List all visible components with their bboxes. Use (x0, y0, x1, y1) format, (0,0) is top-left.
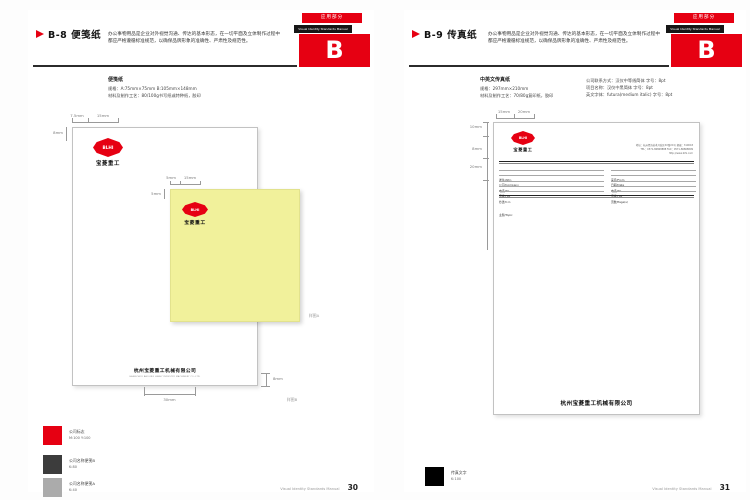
spec-title: 便笺纸 (108, 76, 201, 83)
company-logo: BLHI 宝菱重工 (182, 202, 208, 226)
dim-line (487, 122, 488, 250)
page-footer: Visual Identity Standards Manual 30 (208, 475, 358, 494)
legend-entry: 传真文字 K:100 (451, 470, 467, 481)
fax-field: 电话/Tel (611, 177, 696, 182)
dim-tick (170, 181, 171, 185)
dim-tick (88, 118, 89, 123)
footer-manual-name: Visual Identity Standards Manual (652, 487, 711, 491)
spec-block: 便笺纸 规格：A:75mm×75mm B:105mm×148mm 材料及制作工艺… (108, 76, 201, 99)
company-name-cn: 杭州宝菱重工机械有限公司 (494, 399, 699, 407)
legend-value: K:40 (69, 488, 95, 492)
type-spec-contact: 公司联系方式：汉仪中等线简体 字号：8pt (586, 77, 672, 84)
dim-label: 5mm (146, 191, 161, 196)
typography-spec-block: 公司联系方式：汉仪中等线简体 字号：8pt 项目名称：汉仪中黑简体 字号：8pt… (586, 77, 672, 98)
section-arrow-icon (36, 30, 44, 38)
footer-page-number: 31 (720, 483, 730, 492)
dim-line (164, 189, 165, 199)
fax-field: 传真/Fax (611, 182, 696, 187)
dim-tick (534, 114, 535, 119)
dim-label: 20mm (460, 164, 482, 169)
legend-entry: 公司标志 M:100 Y:100 (69, 429, 91, 440)
dim-label: 15mm (494, 109, 514, 114)
dim-label: 5mm (163, 175, 179, 180)
header-rule (409, 65, 669, 67)
dim-tick (496, 114, 497, 119)
legend-entry: 公司名称便笺A K:40 (69, 481, 95, 492)
section-tab: 应用部分 (674, 13, 734, 23)
spec-material: 材料及制作工艺：80/100g书写纸或特种纸，胶印 (108, 92, 201, 99)
legend-value: K:80 (69, 465, 95, 469)
spec-size: 规格：297mm×210mm (480, 85, 553, 92)
dim-label: 15mm (90, 113, 116, 118)
dim-line (266, 373, 267, 386)
memo-note-paper: BLHI 宝菱重工 (170, 189, 300, 322)
legend-swatch-light-gray (43, 478, 62, 497)
dim-line (496, 118, 534, 119)
section-letter-badge: B (299, 34, 370, 67)
manual-name-bar: Visual Identity Standards Manual (294, 25, 352, 33)
dim-tick (180, 181, 181, 185)
page-title: B-9 传真纸 (424, 27, 477, 41)
dim-tick (483, 122, 489, 123)
spec-size: 规格：A:75mm×75mm B:105mm×148mm (108, 85, 201, 92)
fax-field: 传真/Fax (499, 182, 604, 187)
dim-label: 10mm (460, 124, 482, 129)
legend-swatch-dark-gray (43, 455, 62, 474)
fax-header-rule (499, 161, 694, 164)
fax-field: 公司/Company (499, 171, 604, 176)
fax-company-block: 杭州宝菱重工机械有限公司 (494, 399, 699, 407)
section-letter-badge: B (671, 34, 742, 67)
company-name-en: HANGZHOU BAOLING HEAVY INDUSTRY MACHINER… (73, 376, 257, 378)
legend-swatch-black (425, 467, 444, 486)
section-description: 办公事物用品是企业对外视觉沟通、传达的基本形态，在一切平面及立体制作过程中都应严… (108, 31, 280, 46)
dim-tick (261, 373, 270, 374)
dim-line (170, 184, 200, 185)
section-arrow-icon (412, 30, 420, 38)
fax-divider-rule (499, 195, 694, 198)
dim-tick (483, 158, 489, 159)
right-page: B-9 传真纸 办公事物用品是企业对外视觉沟通、传达的基本形态，在一切平面及立体… (404, 10, 746, 492)
logo-diamond-icon: BLHI (511, 131, 535, 145)
legend-label: 公司名称便笺A (69, 481, 95, 487)
company-logo: BLHI 宝菱重工 (511, 131, 535, 153)
fax-contact-line: http://www.blhi.com (636, 152, 693, 156)
dim-label: 8mm (273, 376, 283, 381)
dim-line (66, 127, 67, 141)
logo-diamond-icon: BLHI (182, 202, 208, 217)
dim-label: 20mm (513, 109, 535, 114)
legend-label: 公司名称便笺B (69, 458, 95, 464)
dim-tick (261, 386, 270, 387)
fax-field: 电话/Tel (499, 177, 604, 182)
section-description: 办公事物用品是企业对外视觉沟通、传达的基本形态，在一切平面及立体制作过程中都应严… (488, 31, 660, 46)
type-spec-english: 英文字体：futura(medium italic) 字号：8pt (586, 91, 672, 98)
memo-company-block: 杭州宝菱重工机械有限公司 HANGZHOU BAOLING HEAVY INDU… (73, 367, 257, 378)
dim-tick (72, 118, 73, 123)
logo-cn-name: 宝菱重工 (93, 159, 123, 167)
spec-block: 中英文传真纸 规格：297mm×210mm 材料及制作工艺：70/80g复印纸，… (480, 76, 553, 99)
dim-tick (514, 114, 515, 119)
spec-title: 中英文传真纸 (480, 76, 553, 83)
dim-line (72, 122, 118, 123)
fax-topic-label: 主题/Topic (499, 213, 513, 217)
fax-topic-field: 主题/Topic (499, 201, 696, 206)
logo-cn-name: 宝菱重工 (511, 147, 535, 153)
fax-field: 页数/Page(s) (611, 188, 696, 193)
dim-label: 8mm (460, 146, 482, 151)
left-page: B-8 便笺纸 办公事物用品是企业对外视觉沟通、传达的基本形态，在一切平面及立体… (28, 10, 374, 492)
manual-name-bar: Visual Identity Standards Manual (666, 25, 724, 33)
annotation-sample-b: 样图B (287, 397, 297, 403)
legend-value: M:100 Y:100 (69, 436, 91, 440)
logo-diamond-icon: BLHI (93, 138, 123, 157)
fax-field: 日期/Date (611, 171, 696, 176)
footer-page-number: 30 (348, 483, 358, 492)
header-rule (33, 65, 297, 67)
dim-tick (200, 181, 201, 185)
legend-entry: 公司名称便笺B K:80 (69, 458, 95, 469)
dim-tick (483, 180, 489, 181)
logo-cn-name: 宝菱重工 (182, 219, 208, 226)
page-title: B-8 便笺纸 (48, 27, 101, 41)
legend-swatch-red (43, 426, 62, 445)
spec-material: 材料及制作工艺：70/80g复印纸，胶印 (480, 92, 553, 99)
footer-manual-name: Visual Identity Standards Manual (280, 487, 339, 491)
dim-label: 8mm (46, 130, 63, 135)
manual-spread: B-8 便笺纸 办公事物用品是企业对外视觉沟通、传达的基本形态，在一切平面及立体… (0, 0, 750, 500)
fax-field: 抄送/C.C. (499, 188, 604, 193)
fax-field: 来自/From (611, 166, 696, 171)
type-spec-project: 项目名称：汉仪中黑简体 字号：8pt (586, 84, 672, 91)
legend-value: K:100 (451, 477, 467, 481)
dim-label: 15mm (179, 175, 201, 180)
dim-label: 7.5mm (66, 113, 88, 118)
fax-field: 发往/Attn (499, 166, 604, 171)
dim-tick (195, 387, 196, 396)
fax-paper: BLHI 宝菱重工 地址：杭州经济技术开发区XX路XX号 邮编：310018 T… (493, 122, 700, 415)
annotation-sample-a: 样图A (309, 313, 319, 319)
legend-label: 传真文字 (451, 470, 467, 476)
dim-tick (118, 118, 119, 123)
page-footer: Visual Identity Standards Manual 31 (580, 475, 730, 494)
company-logo: BLHI 宝菱重工 (93, 138, 123, 167)
section-tab: 应用部分 (302, 13, 362, 23)
dim-label: 30mm (144, 397, 195, 402)
legend-label: 公司标志 (69, 429, 91, 435)
dim-tick (483, 136, 489, 137)
fax-contact-block: 地址：杭州经济技术开发区XX路XX号 邮编：310018 TEL：0571-86… (636, 144, 693, 156)
company-name-cn: 杭州宝菱重工机械有限公司 (73, 367, 257, 374)
dim-line (144, 394, 195, 395)
